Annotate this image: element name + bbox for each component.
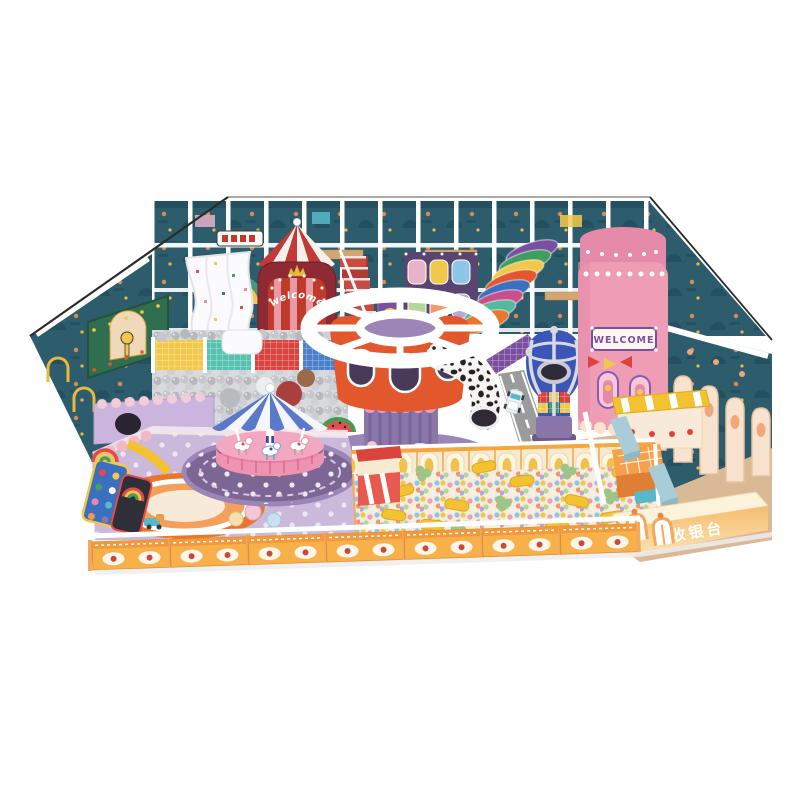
arch-sign xyxy=(217,231,263,246)
tower-ring xyxy=(308,295,492,361)
tunnel-hole xyxy=(115,413,141,435)
tower-window xyxy=(539,362,569,382)
svg-text:WELCOME: WELCOME xyxy=(593,335,654,346)
screenshot-canvas: welcome xyxy=(0,0,800,800)
steps-structure xyxy=(356,446,402,506)
big-brown-ball xyxy=(297,369,315,387)
playground-render: welcome xyxy=(0,0,800,800)
castle-welcome-sign: WELCOME xyxy=(590,326,658,352)
